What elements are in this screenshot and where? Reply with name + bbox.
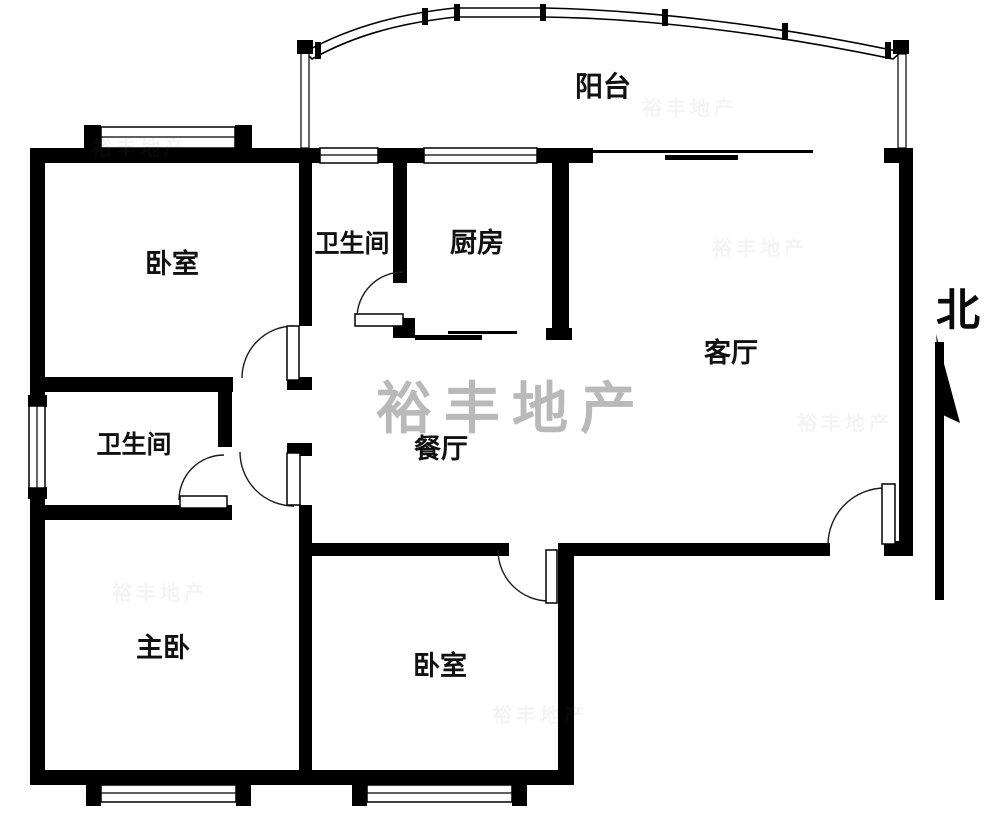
room-label-bedroom-bottom: 卧室 [413,650,467,681]
room-label-master-bedroom: 主卧 [136,633,190,663]
room-label-dining-room: 餐厅 [414,434,468,464]
wall-top-mid [378,148,424,163]
window-post [512,783,527,806]
window-post [28,395,47,407]
window-mullion-icon [315,42,321,59]
wall-living-west [552,163,569,340]
wall-top-kitchen-right [537,148,593,163]
wall-bedroom-bottom [312,770,558,785]
door-arc [179,455,224,500]
room-label-bedroom-top: 卧室 [145,248,199,279]
sliding-door-kitchen-leaf [448,331,517,334]
door-leaf [180,496,227,508]
wall-bath-kitchen-divider [393,163,407,283]
watermark-tile: 裕丰地产 [797,411,893,435]
north-arrow-shaft [935,342,944,600]
watermark-main: 裕丰地产 [376,377,648,440]
room-label-bathroom-left: 卫生间 [96,431,171,459]
window-mullion-icon [885,42,891,59]
floorplan-svg: 裕丰地产 裕丰地产 裕丰地产 裕丰地产 裕丰地产 裕丰地产 裕丰地产 阳台 卧室… [0,0,1000,826]
door-leaf [882,484,895,544]
door-arc [242,326,294,378]
window-post [235,125,252,151]
room-label-kitchen: 厨房 [450,228,504,258]
window-mullion-icon [662,9,668,26]
window-post [236,783,251,806]
balcony-right-post [893,40,909,54]
watermark-tile: 裕丰地产 [712,236,808,260]
door-leaf [546,550,557,603]
window-mullion-icon [422,8,428,25]
window-post [28,487,47,499]
wall-bath-left-top [30,377,233,392]
sliding-door-kitchen [415,335,482,340]
north-label: 北 [936,286,980,335]
door-leaf [287,326,299,380]
balcony-left-rail [301,52,309,148]
wall-entrance-corner [884,543,913,556]
watermark-tile: 裕丰地产 [642,96,738,120]
sliding-door-balcony [592,150,813,153]
window-mullion-icon [782,23,788,40]
door-arc [828,488,885,545]
watermark-tile: 裕丰地产 [492,703,588,727]
door-leaf [287,453,300,505]
wall-bedroom-top [299,543,509,556]
room-label-bathroom-top: 卫生间 [314,230,389,258]
room-label-balcony: 阳台 [575,70,631,103]
watermark-tile: 裕丰地产 [92,136,188,160]
balcony-curved-window [305,8,901,59]
wall-bedroom-bath-divider [299,163,312,326]
door-arc [240,452,294,506]
window-mullion-icon [454,4,460,21]
north-indicator: 北 [935,286,980,600]
floorplan-page: 裕丰地产 裕丰地产 裕丰地产 裕丰地产 裕丰地产 裕丰地产 裕丰地产 阳台 卧室… [0,0,1000,826]
sliding-door-balcony-leaf [665,155,738,160]
room-label-living-room: 客厅 [704,337,758,368]
window-post [352,783,367,806]
wall-bedroom-east [558,543,574,785]
door-arc [498,550,549,601]
balcony-right-rail [898,54,906,148]
wall-bath-left-east [218,392,232,447]
watermark-tile: 裕丰地产 [112,581,208,605]
balcony-left-post [297,40,313,54]
window-post [86,783,101,806]
wall-living-bottom [558,543,830,556]
wall-right-outer [899,148,913,553]
window-mullion-icon [540,4,546,21]
door-leaf [355,314,403,326]
wall-living-west-foot [546,328,572,340]
wall-master-bottom [30,770,312,785]
